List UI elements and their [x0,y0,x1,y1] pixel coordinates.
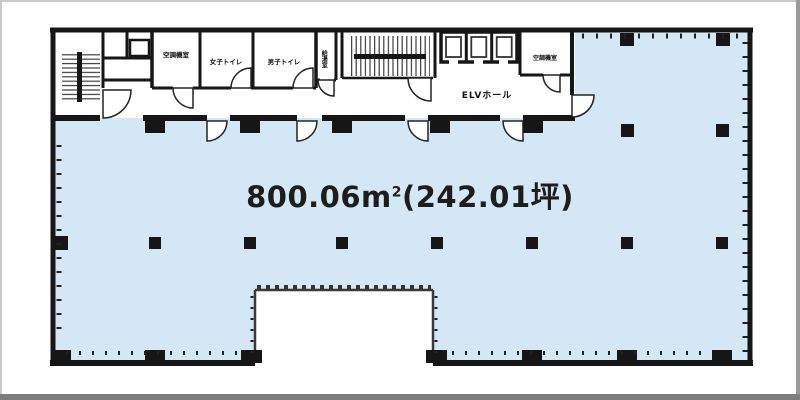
room-label-mens-toilet: 男子トイレ [254,59,314,66]
floor-plan: 空調機室 女子トイレ 男子トイレ 給湯室 ELVホール 空調機室 800.06m… [0,0,800,400]
frame-border-right [796,0,800,400]
area-m2: 800.06m [246,180,392,214]
room-label-elevator-hall: ELVホール [447,92,527,101]
staircase-left [62,52,100,102]
area-tsubo: (242.01坪) [402,180,574,214]
area-sup: 2 [392,184,402,200]
elevator-shafts [441,32,517,65]
staircase-right [348,36,430,76]
room-label-machine-room-left: 空調機室 [146,52,206,59]
room-label-kitchenette: 給湯室 [320,40,326,78]
frame-border-top [0,0,800,2]
notch-walls [255,290,433,361]
room-label-womens-toilet: 女子トイレ [196,59,256,66]
frame-border-bottom [0,394,800,400]
frame-border-left [0,0,2,400]
area-label: 800.06m2(242.01坪) [180,174,640,216]
room-label-machine-room-right: 空調機室 [520,56,570,62]
